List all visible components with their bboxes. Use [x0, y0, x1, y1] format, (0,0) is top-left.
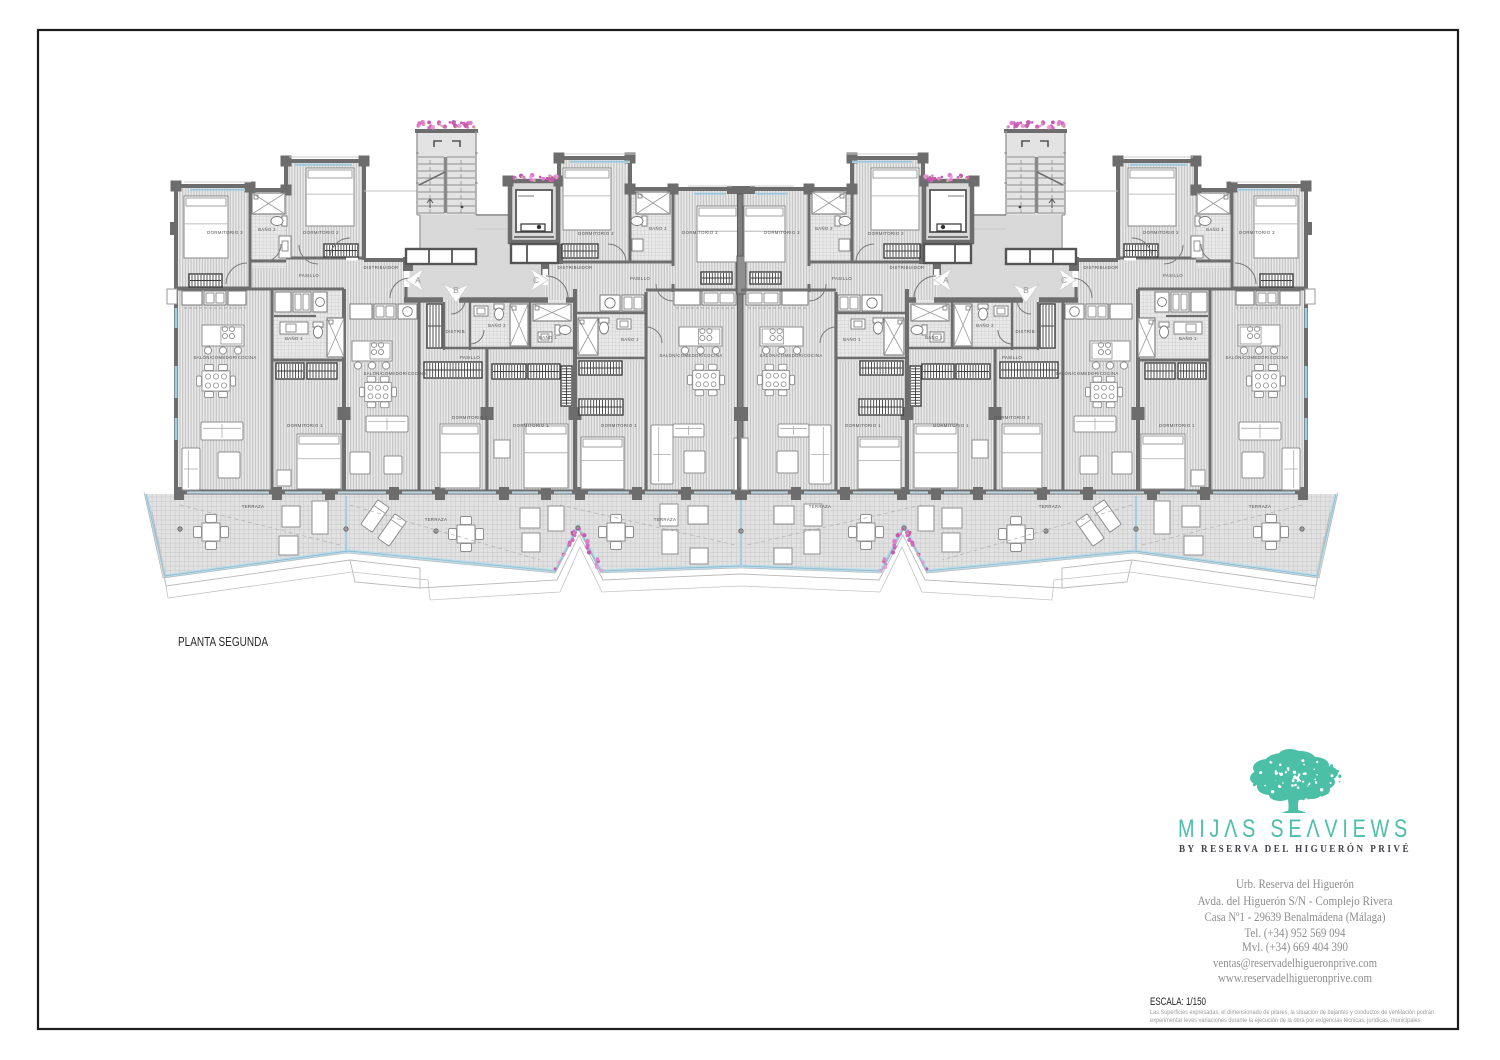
svg-text:SALÓN/COMEDOR/COCINA: SALÓN/COMEDOR/COCINA: [759, 353, 822, 358]
svg-text:A: A: [415, 275, 421, 285]
svg-text:DISTRIBUIDOR: DISTRIBUIDOR: [890, 265, 925, 270]
svg-text:BAÑO 2: BAÑO 2: [976, 323, 994, 328]
svg-text:DORMITORIO 2: DORMITORIO 2: [1143, 230, 1179, 235]
svg-text:Las Superficies expresadas, el: Las Superficies expresadas, el dimension…: [1150, 1009, 1434, 1016]
svg-text:Urb. Reserva del Higuerón: Urb. Reserva del Higuerón: [1236, 877, 1355, 891]
svg-text:TERRAZA: TERRAZA: [809, 504, 832, 509]
svg-text:DORMITORIO 1: DORMITORIO 1: [845, 423, 881, 428]
svg-text:C: C: [533, 275, 539, 285]
svg-text:DORMITORIO 1: DORMITORIO 1: [933, 423, 969, 428]
svg-text:DORMITORIO 1: DORMITORIO 1: [1159, 423, 1195, 428]
svg-text:BAÑO 1: BAÑO 1: [539, 335, 557, 340]
svg-text:SALÓN/COMEDOR/COCINA: SALÓN/COMEDOR/COCINA: [659, 353, 722, 358]
svg-text:DISTRIBUIDOR: DISTRIBUIDOR: [1084, 265, 1119, 270]
svg-text:PASILLO: PASILLO: [460, 355, 480, 360]
svg-text:BAÑO 1: BAÑO 1: [285, 336, 303, 341]
svg-text:BAÑO 2: BAÑO 2: [815, 226, 833, 231]
svg-text:SALÓN/COMEDOR/COCINA: SALÓN/COMEDOR/COCINA: [363, 371, 426, 376]
svg-text:PLANTA SEGUNDA: PLANTA SEGUNDA: [178, 634, 268, 649]
svg-text:TERRAZA: TERRAZA: [1039, 504, 1062, 509]
svg-text:Tel. (+34) 952 569 094: Tel. (+34) 952 569 094: [1245, 926, 1347, 940]
svg-text:TERRAZA: TERRAZA: [242, 504, 265, 509]
svg-text:BAÑO 2: BAÑO 2: [258, 227, 276, 232]
svg-text:DISTRIB.: DISTRIB.: [1016, 329, 1037, 334]
svg-text:C: C: [1061, 275, 1067, 285]
svg-text:SALÓN/COMEDOR/COCINA: SALÓN/COMEDOR/COCINA: [1225, 355, 1288, 360]
svg-text:DORMITORIO 3: DORMITORIO 3: [207, 230, 243, 235]
svg-text:DORMITORIO 1: DORMITORIO 1: [287, 423, 323, 428]
svg-text:DORMITORIO 1: DORMITORIO 1: [601, 423, 637, 428]
svg-text:PASILLO: PASILLO: [1163, 273, 1183, 278]
svg-text:PASILLO: PASILLO: [299, 273, 319, 278]
svg-text:DORMITORIO 1: DORMITORIO 1: [513, 423, 549, 428]
svg-text:B: B: [1023, 285, 1029, 295]
svg-text:SALÓN/COMEDOR/COCINA: SALÓN/COMEDOR/COCINA: [193, 355, 256, 360]
svg-text:DISTRIB.: DISTRIB.: [446, 329, 467, 334]
svg-text:TERRAZA: TERRAZA: [1249, 504, 1272, 509]
svg-text:TERRAZA: TERRAZA: [654, 517, 677, 522]
svg-text:DORMITORIO 2: DORMITORIO 2: [994, 415, 1030, 420]
svg-text:MIJΛS SEΛVIEWS: MIJΛS SEΛVIEWS: [1178, 815, 1412, 843]
svg-text:Avda. del Higuerón S/N - Comp: Avda. del Higuerón S/N - Complejo Rivera: [1198, 894, 1393, 908]
svg-text:DORMITORIO 2: DORMITORIO 2: [578, 231, 614, 236]
svg-text:DISTRIBUIDOR: DISTRIBUIDOR: [364, 265, 399, 270]
svg-text:PASILLO: PASILLO: [832, 276, 852, 281]
svg-text:B: B: [453, 285, 459, 295]
svg-text:BAÑO 2: BAÑO 2: [1206, 227, 1224, 232]
svg-text:BAÑO 1: BAÑO 1: [1179, 336, 1197, 341]
svg-text:Casa Nº1 - 29639 Benalmádena (: Casa Nº1 - 29639 Benalmádena (Málaga): [1205, 910, 1386, 924]
svg-text:DORMITORIO 2: DORMITORIO 2: [303, 230, 339, 235]
svg-text:BAÑO 2: BAÑO 2: [649, 226, 667, 231]
svg-text:DORMITORIO 2: DORMITORIO 2: [452, 415, 488, 420]
svg-text:ESCALA: 1/150: ESCALA: 1/150: [1150, 996, 1206, 1008]
svg-text:BAÑO 2: BAÑO 2: [488, 323, 506, 328]
svg-text:DORMITORIO 3: DORMITORIO 3: [682, 230, 718, 235]
svg-text:PASILLO: PASILLO: [630, 276, 650, 281]
svg-text:DORMITORIO 3: DORMITORIO 3: [764, 230, 800, 235]
svg-text:BAÑO 1: BAÑO 1: [621, 337, 639, 342]
svg-text:BY RESERVA DEL HIGUERÓN PRIVÉ: BY RESERVA DEL HIGUERÓN PRIVÉ: [1179, 843, 1411, 855]
svg-text:SALÓN/COMEDOR/COCINA: SALÓN/COMEDOR/COCINA: [1055, 371, 1118, 376]
svg-text:DISTRIBUIDOR: DISTRIBUIDOR: [558, 265, 593, 270]
svg-text:experimentar leves variaciones: experimentar leves variaciones durante l…: [1150, 1017, 1422, 1024]
svg-text:DORMITORIO 2: DORMITORIO 2: [868, 231, 904, 236]
svg-text:ventas@reservadelhigueronprive: ventas@reservadelhigueronprive.com: [1213, 956, 1377, 970]
svg-text:BAÑO 1: BAÑO 1: [925, 335, 943, 340]
svg-text:www.reservadelhigueronprive.co: www.reservadelhigueronprive.com: [1218, 971, 1372, 985]
svg-text:Mvl. (+34) 669 404 390: Mvl. (+34) 669 404 390: [1242, 940, 1348, 954]
svg-text:A: A: [943, 275, 949, 285]
svg-text:BAÑO 1: BAÑO 1: [843, 337, 861, 342]
svg-text:PASILLO: PASILLO: [1002, 355, 1022, 360]
svg-text:DORMITORIO 3: DORMITORIO 3: [1239, 230, 1275, 235]
svg-text:TERRAZA: TERRAZA: [425, 517, 448, 522]
